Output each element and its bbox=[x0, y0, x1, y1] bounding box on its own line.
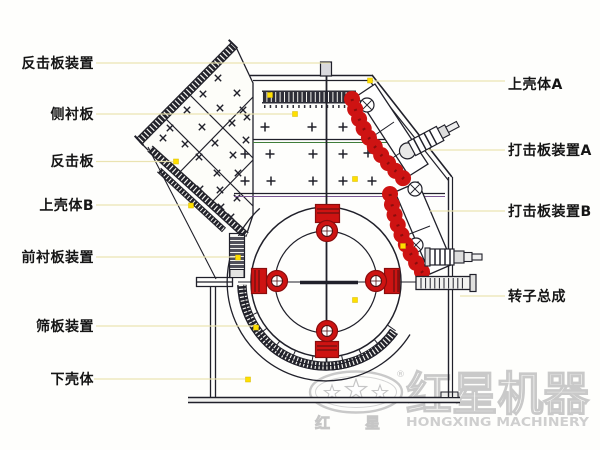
leader-target-dot bbox=[293, 112, 298, 117]
leader-target-dot bbox=[174, 159, 179, 164]
watermark-brand-english: HONGXING MACHINERY bbox=[406, 415, 589, 429]
callout-lower-shell: 下壳体 bbox=[51, 369, 95, 389]
leader-target-dot bbox=[401, 244, 406, 249]
watermark-char-xing: 星 bbox=[365, 414, 380, 432]
watermark-char-hong: 红 bbox=[315, 414, 330, 432]
leader-target-dot bbox=[254, 325, 259, 330]
callout-impact-plate-assembly: 反击板装置 bbox=[22, 53, 95, 73]
callout-impact-plate: 反击板 bbox=[51, 151, 95, 171]
feed-chain-curtain bbox=[262, 97, 356, 107]
callout-rotor-assembly: 转子总成 bbox=[508, 286, 566, 306]
callout-striker-plate-a: 打击板装置A bbox=[508, 140, 592, 160]
rotor-shaft bbox=[416, 275, 476, 292]
logo-star-center-icon bbox=[346, 379, 367, 399]
callout-front-liner-assembly: 前衬板装置 bbox=[22, 247, 95, 267]
watermark-brand-chinese: 红星机器 bbox=[406, 367, 590, 421]
leader-target-dot bbox=[189, 203, 194, 208]
leader-target-dot bbox=[353, 177, 358, 182]
callout-side-liner-plate: 侧衬板 bbox=[51, 104, 95, 124]
callout-upper-shell-b: 上壳体B bbox=[39, 195, 94, 215]
callout-upper-shell-a: 上壳体A bbox=[508, 74, 563, 94]
blow-bar-bottom-icon bbox=[316, 321, 339, 358]
shell-plus-bolt-marks bbox=[241, 123, 377, 186]
callout-screen-plate-assembly: 筛板装置 bbox=[36, 316, 94, 336]
adjusting-spring-bolt-b bbox=[425, 248, 482, 266]
leader-target-dot bbox=[368, 78, 373, 83]
registered-trademark-symbol: ® bbox=[396, 370, 405, 380]
blow-bar-left-icon bbox=[252, 269, 288, 294]
blow-bar-top-icon bbox=[316, 205, 340, 242]
leader-target-dot bbox=[268, 93, 273, 98]
upper-shell-a-plates bbox=[234, 62, 452, 197]
top-bolt-stub bbox=[321, 62, 332, 76]
leader-target-dot bbox=[236, 255, 241, 260]
leader-target-dot bbox=[353, 298, 358, 303]
callout-striker-plate-b: 打击板装置B bbox=[508, 201, 592, 221]
leader-target-dot bbox=[246, 377, 251, 382]
impact-crusher-diagram-page: ® 红星机器 HONGXING MACHINERY 红 星 bbox=[0, 0, 600, 450]
blow-bar-right-icon bbox=[366, 269, 400, 294]
callout-leader-lines bbox=[94, 63, 505, 379]
